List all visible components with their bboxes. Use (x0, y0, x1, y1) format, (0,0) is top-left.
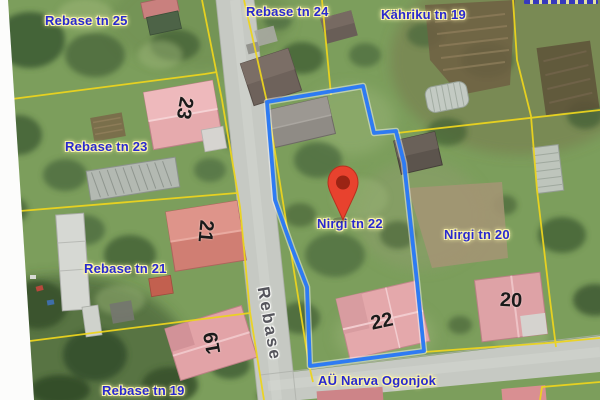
house-number-23: 23 (171, 95, 198, 121)
house-number-22: 22 (369, 308, 396, 335)
map-pin-icon[interactable] (321, 163, 365, 225)
partial-label-top-right (524, 0, 598, 4)
parcel-label-rebase-tn-19: Rebase tn 19 (102, 383, 185, 398)
house-number-20: 20 (499, 289, 522, 313)
parcel-label-nirgi-tn-20: Nirgi tn 20 (444, 227, 510, 242)
house-number-19: 19 (200, 330, 227, 356)
map-canvas[interactable]: Rebase tn 25 Rebase tn 24 Kähriku tn 19 … (0, 0, 600, 400)
satellite-imagery (0, 0, 600, 400)
parcel-label-rebase-tn-23: Rebase tn 23 (65, 139, 148, 154)
parcel-label-rebase-tn-21: Rebase tn 21 (84, 261, 167, 276)
parcel-label-kahriku-tn-19: Kähriku tn 19 (381, 7, 466, 22)
house-number-21: 21 (193, 219, 218, 243)
parcel-label-rebase-tn-24: Rebase tn 24 (246, 4, 329, 19)
parcel-label-rebase-tn-25: Rebase tn 25 (45, 13, 128, 28)
area-label-au-narva-ogonjok: AÜ Narva Ogonjok (318, 373, 436, 388)
